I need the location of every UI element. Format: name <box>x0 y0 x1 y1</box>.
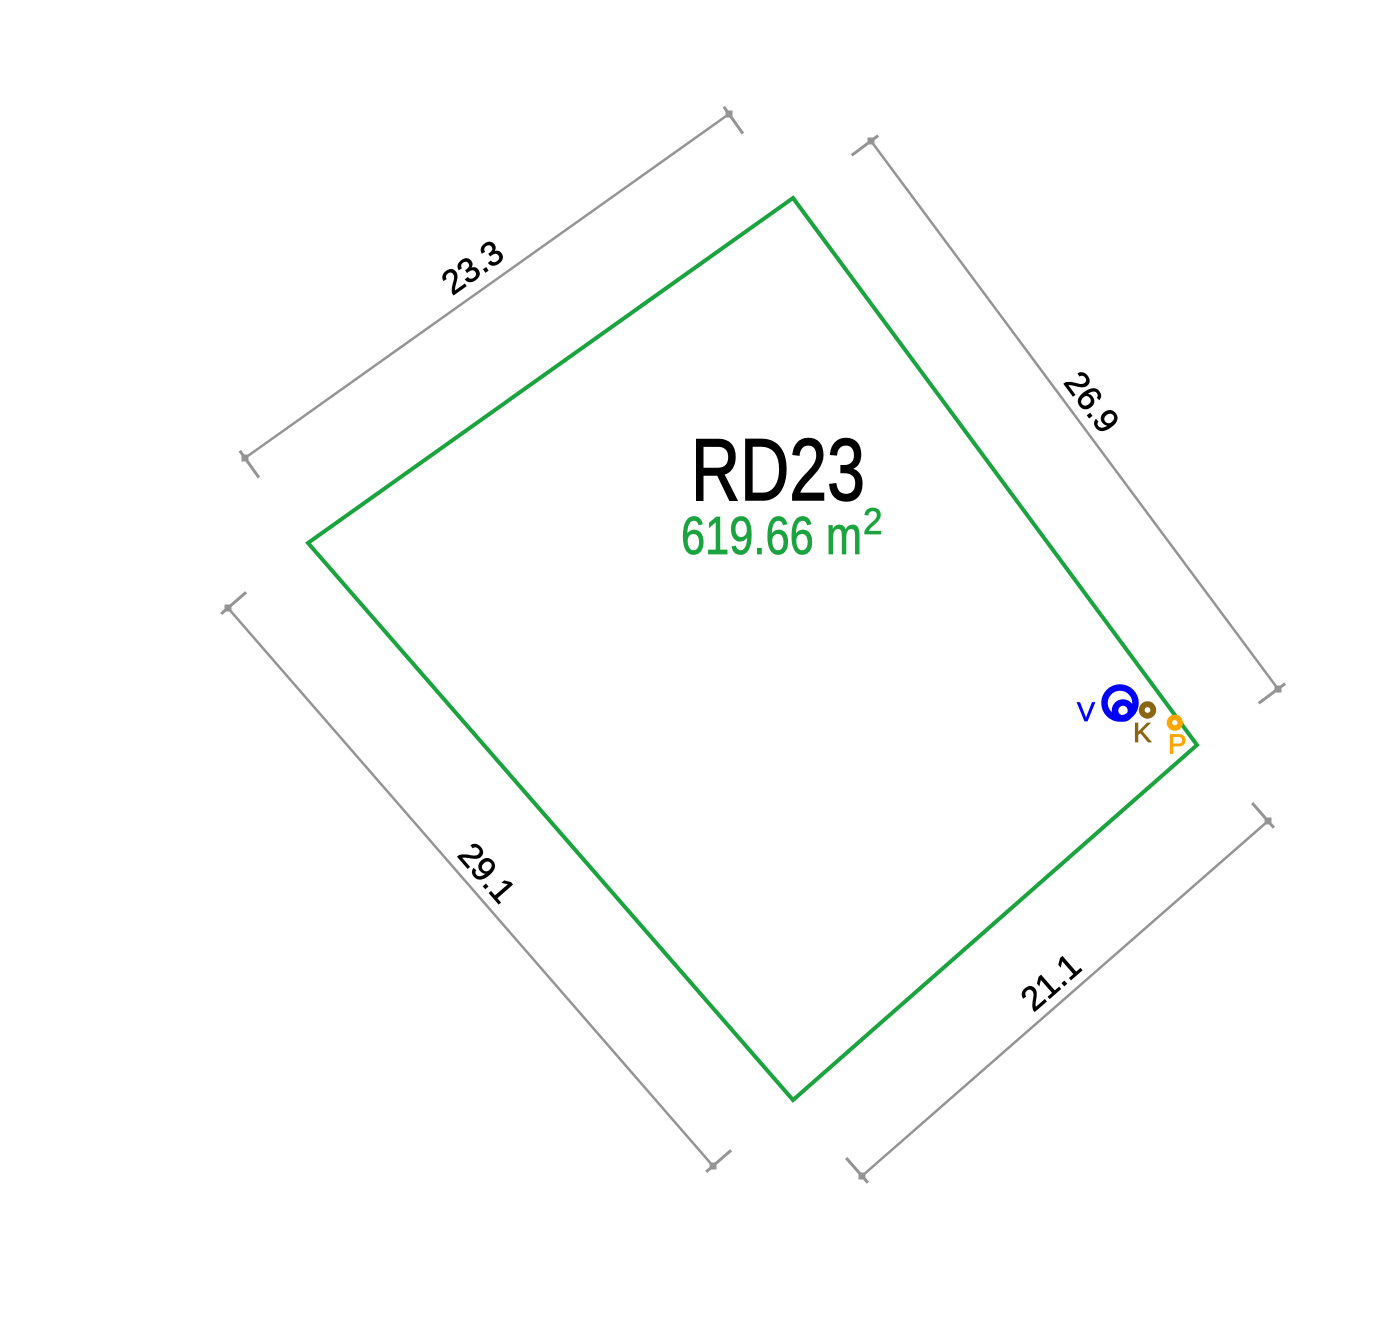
svg-text:K: K <box>1133 717 1152 748</box>
svg-text:619.66 m: 619.66 m <box>681 506 862 566</box>
svg-text:V: V <box>1077 697 1095 727</box>
svg-text:RD23: RD23 <box>691 420 865 519</box>
svg-text:2: 2 <box>863 501 883 542</box>
svg-text:P: P <box>1168 729 1187 760</box>
